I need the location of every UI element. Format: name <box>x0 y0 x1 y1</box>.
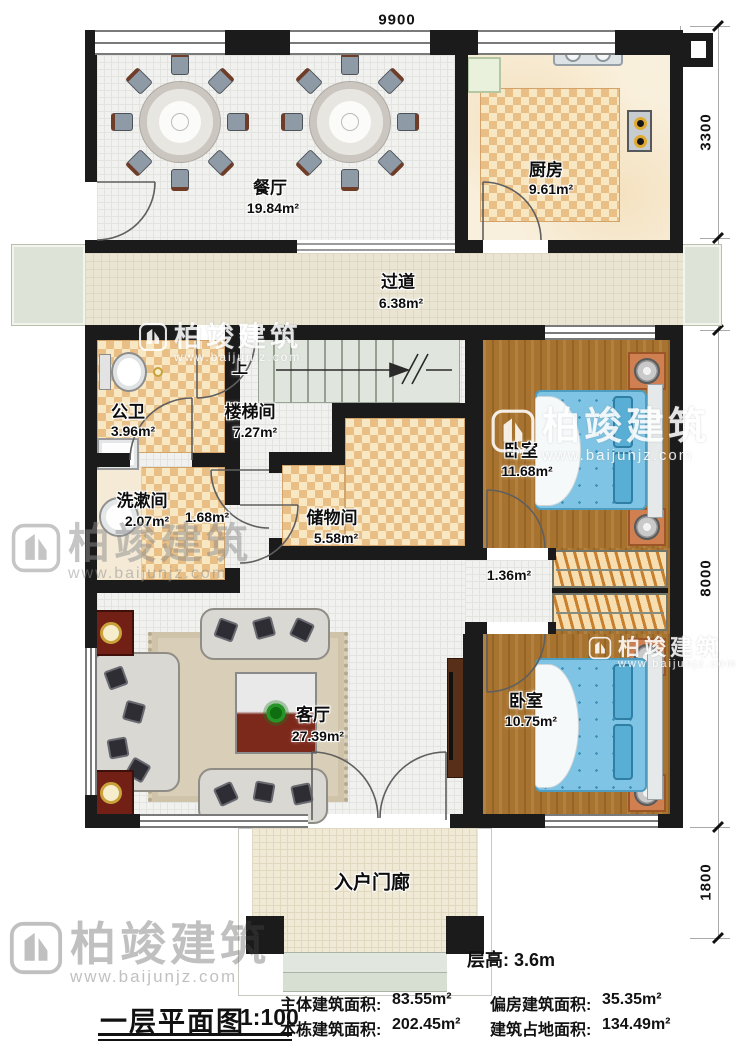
label-storage: 储物间 <box>307 504 358 529</box>
window-dining-2 <box>290 30 430 55</box>
stove <box>627 110 652 152</box>
wall <box>465 622 487 634</box>
label-hall-upper-area: 1.68m² <box>185 509 229 525</box>
window-dining-1 <box>95 30 225 55</box>
wall-dining-kitchen <box>455 55 468 240</box>
wall <box>430 30 478 55</box>
label-washroom: 洗漱间 <box>117 487 168 512</box>
stat-annex-label: 偏房建筑面积: <box>490 991 591 1015</box>
bed-pillow <box>613 396 633 448</box>
dim-ext <box>690 26 730 27</box>
bed-headboard <box>647 384 663 518</box>
wall <box>658 814 683 828</box>
sofa-pillow <box>252 616 276 640</box>
wall <box>269 465 282 473</box>
lamp <box>634 358 660 384</box>
stat-annex-value: 35.35m² <box>602 991 662 1009</box>
stove-burner <box>634 135 647 148</box>
sofa-pillow <box>289 617 316 644</box>
label-porch: 入户门廊 <box>334 868 410 895</box>
sofa-pillow <box>252 780 275 803</box>
floor-height-text: 层高: 3.6m <box>467 946 555 972</box>
wall <box>670 325 683 828</box>
label-stairwell: 楼梯间 <box>225 398 276 423</box>
kitchen-flue-inner <box>691 41 706 58</box>
label-bathroom-area: 3.96m² <box>111 423 155 439</box>
wall <box>85 325 197 340</box>
window-living <box>85 648 97 795</box>
wall <box>85 240 297 253</box>
toilet <box>111 352 147 392</box>
plant <box>261 698 291 728</box>
label-bedroom1-area: 11.68m² <box>501 463 552 479</box>
dining-chair <box>397 113 419 131</box>
round-dining-table <box>310 82 390 162</box>
corridor-right-ramp <box>683 245 721 325</box>
dining-chair <box>171 169 189 191</box>
wardrobe-bedroom1 <box>552 550 668 588</box>
plan-scale: 1:100 <box>240 1004 299 1031</box>
wall <box>258 325 545 340</box>
dining-chair <box>111 113 133 131</box>
sofa-pillow <box>122 700 146 724</box>
wall <box>85 340 97 648</box>
wall-bedroom2 <box>463 634 483 818</box>
wall <box>85 55 97 182</box>
label-hall-bedrooms-area: 1.36m² <box>487 567 531 583</box>
floor-drain <box>153 367 163 377</box>
label-corridor-area: 6.38m² <box>379 295 423 311</box>
toilet-tank <box>99 354 111 390</box>
floor-plan: 9900 3300 1500 8000 1800 <box>0 0 750 1054</box>
porch-column <box>246 916 284 954</box>
stat-main-value: 83.55m² <box>392 991 452 1009</box>
wall <box>548 548 556 560</box>
dining-chair <box>341 169 359 191</box>
sofa-pillow <box>213 781 240 808</box>
title-underline <box>98 1033 292 1036</box>
window-living-south <box>140 814 308 828</box>
wall <box>225 30 290 55</box>
label-washroom-area: 2.07m² <box>125 513 169 529</box>
porch-step-1 <box>283 952 447 974</box>
sofa-pillow <box>290 782 314 806</box>
wall <box>465 548 487 560</box>
label-bathroom: 公卫 <box>111 398 145 423</box>
wall-storage-bottom <box>269 546 478 560</box>
wardrobe-bedroom2 <box>552 593 668 631</box>
label-living-area: 27.39m² <box>292 728 344 744</box>
label-kitchen-area: 9.61m² <box>529 181 573 197</box>
tv-screen <box>449 672 453 760</box>
wall <box>548 240 683 253</box>
window-bedroom1 <box>545 325 655 340</box>
storage-floor-main <box>345 418 465 546</box>
label-stairwell-area: 7.27m² <box>233 424 277 440</box>
label-stairs-up: 上 <box>232 354 248 378</box>
label-corridor: 过道 <box>381 268 415 293</box>
table-ornament <box>100 622 122 644</box>
fridge <box>467 57 501 93</box>
sofa-pillow <box>103 665 129 691</box>
sofa-pillow <box>106 736 129 759</box>
dim-label-8000: 8000 <box>698 559 715 596</box>
dim-label-3300: 3300 <box>698 113 715 150</box>
label-living: 客厅 <box>296 701 330 726</box>
wall-hall-bedroom1 <box>465 325 483 548</box>
label-dining: 餐厅 <box>253 174 287 199</box>
dining-chair <box>171 53 189 75</box>
watermark: 柏竣建筑www.baijunjz.com <box>8 920 270 986</box>
sofa-top <box>200 608 330 660</box>
label-bedroom2-area: 10.75m² <box>505 713 557 729</box>
dining-chair <box>227 113 249 131</box>
label-dining-area: 19.84m² <box>247 200 299 216</box>
table-ornament <box>100 782 122 804</box>
wall-storage-top <box>332 403 478 418</box>
dim-ext <box>690 827 730 828</box>
dim-label-1800: 1800 <box>698 863 715 900</box>
dim-label-9900: 9900 <box>378 12 415 29</box>
stove-burner <box>634 117 647 130</box>
label-kitchen: 厨房 <box>529 156 563 181</box>
stat-footprint-value: 134.49m² <box>602 1016 671 1034</box>
dim-line-right <box>718 26 719 938</box>
wall <box>85 30 95 55</box>
wall <box>548 622 556 634</box>
wall <box>85 814 140 828</box>
window-kitchen <box>478 30 615 55</box>
corridor-left-ramp <box>12 245 85 325</box>
wall <box>269 452 345 465</box>
stairs-treads <box>258 333 398 403</box>
window-bedroom2 <box>545 814 658 828</box>
label-bedroom1: 卧室 <box>504 437 538 462</box>
wall-washroom <box>225 453 240 505</box>
dining-opening-line <box>297 243 455 245</box>
label-bedroom2: 卧室 <box>509 687 543 712</box>
bed-pillow <box>613 724 633 780</box>
porch-step-2 <box>283 972 447 992</box>
label-storage-area: 5.58m² <box>314 530 358 546</box>
stat-footprint-label: 建筑占地面积: <box>490 1016 591 1040</box>
round-dining-table <box>140 82 220 162</box>
brand-logo-icon <box>8 920 64 976</box>
dim-ext <box>690 938 730 939</box>
bed-pillow <box>613 664 633 720</box>
title-underline <box>98 1039 292 1041</box>
wall <box>670 30 683 253</box>
dining-chair <box>341 53 359 75</box>
dining-chair <box>281 113 303 131</box>
brand-logo-icon <box>10 522 62 574</box>
stat-building-value: 202.45m² <box>392 1016 461 1034</box>
wall <box>85 580 240 593</box>
bed-pillow <box>613 452 633 504</box>
wall <box>455 240 483 253</box>
wall <box>85 453 130 467</box>
dining-opening-line <box>297 249 455 251</box>
sofa-pillow <box>213 617 239 643</box>
bed-headboard <box>647 652 663 800</box>
